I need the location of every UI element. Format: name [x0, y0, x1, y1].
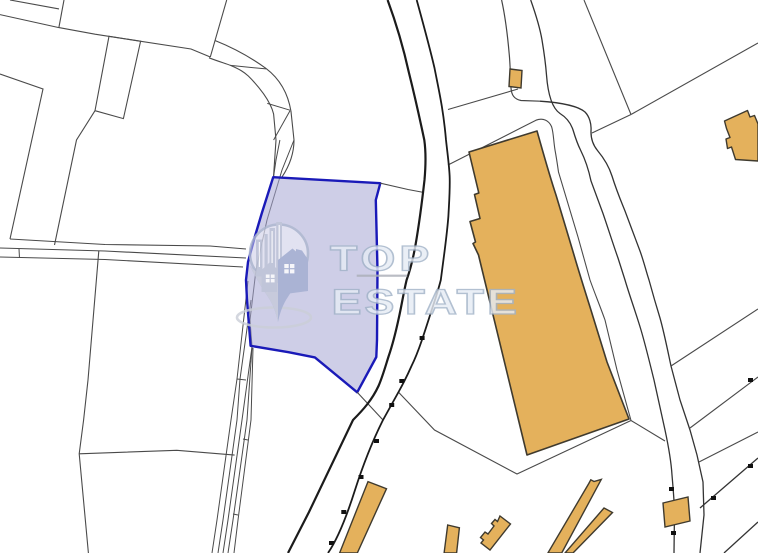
- svg-text:TOP: TOP: [330, 239, 433, 278]
- svg-text:ESTATE: ESTATE: [332, 283, 520, 322]
